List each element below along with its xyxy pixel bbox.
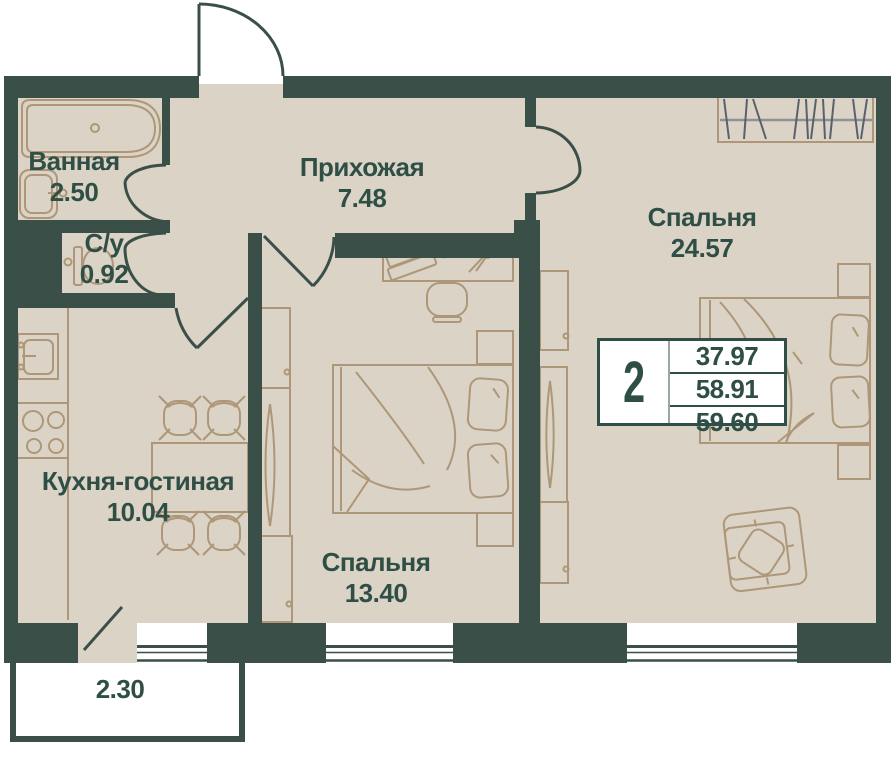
room-name: Спальня [322, 547, 431, 578]
room-area: 10.04 [42, 497, 234, 528]
balcony-area: 2.30 [96, 674, 145, 705]
area-value: 59.60 [670, 405, 784, 438]
room-label-kitchen-living: Кухня-гостиная 10.04 [42, 466, 234, 528]
room-label-wc: С/у 0.92 [80, 228, 129, 290]
window [137, 623, 207, 663]
room-area: 7.48 [300, 183, 424, 214]
balcony-label: 2.30 [96, 674, 145, 705]
area-value: 37.97 [670, 341, 784, 372]
room-label-bedroom: Спальня 13.40 [322, 547, 431, 609]
window [627, 623, 797, 663]
apartment-info-box: 2 37.97 58.91 59.60 [597, 338, 787, 426]
room-label-bedroom-master: Спальня 24.57 [648, 202, 757, 264]
room-name: С/у [80, 228, 129, 259]
rooms-count: 2 [600, 341, 670, 423]
room-name: Спальня [648, 202, 757, 233]
room-area: 2.50 [28, 177, 119, 208]
room-label-hallway: Прихожая 7.48 [300, 152, 424, 214]
room-name: Прихожая [300, 152, 424, 183]
room-area: 0.92 [80, 259, 129, 290]
room-label-bathroom: Ванная 2.50 [28, 146, 119, 208]
room-name: Кухня-гостиная [42, 466, 234, 497]
area-value: 58.91 [670, 372, 784, 405]
room-area: 13.40 [322, 578, 431, 609]
entrance-door [199, 4, 283, 76]
room-area: 24.57 [648, 233, 757, 264]
window [326, 623, 453, 663]
room-name: Ванная [28, 146, 119, 177]
area-values: 37.97 58.91 59.60 [670, 341, 784, 423]
